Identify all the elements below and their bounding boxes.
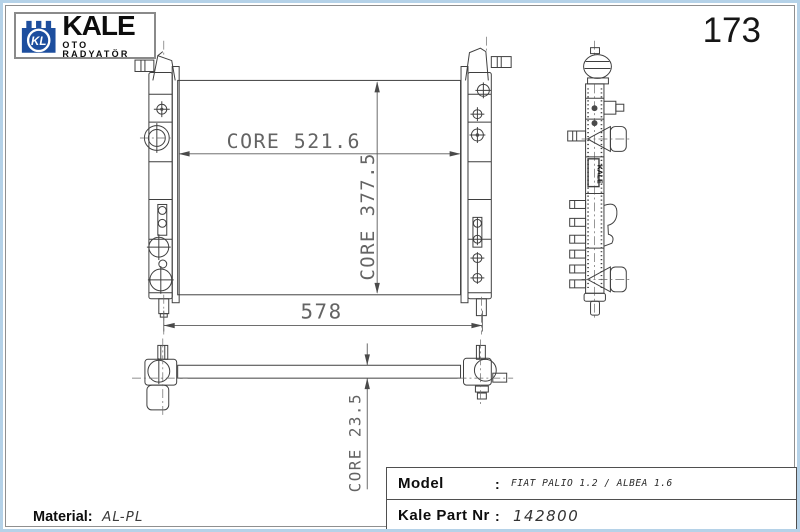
spec-row-part-number: Kale Part Nr : 142800 xyxy=(387,500,796,531)
front-view-left-tank xyxy=(135,41,179,335)
material-value: AL-PL xyxy=(102,509,143,525)
material-note: Material: AL-PL xyxy=(33,508,143,526)
dim-core-depth: CORE 23.5 xyxy=(345,343,370,492)
part-number-value: 142800 xyxy=(513,507,579,525)
spec-row-model: Model : FIAT PALIO 1.2 / ALBEA 1.6 xyxy=(387,468,796,500)
dim-core-height: CORE 377.5 xyxy=(358,81,380,293)
dim-core-width: CORE 521.6 xyxy=(179,130,461,157)
side-view: KALE xyxy=(568,41,631,319)
part-number-colon: : xyxy=(495,508,505,524)
catalog-page: KL KALE OTO RADYATÖR 173 xyxy=(0,0,800,532)
bottom-view-band xyxy=(178,365,461,378)
bottom-left-outlet xyxy=(147,385,169,410)
page-number: 173 xyxy=(703,11,761,51)
kale-logo: KL KALE OTO RADYATÖR xyxy=(14,12,156,59)
logo-brand: KALE xyxy=(62,12,149,40)
spec-table: Model : FIAT PALIO 1.2 / ALBEA 1.6 Kale … xyxy=(386,467,797,532)
radiator-technical-drawing: CORE 521.6 CORE 377.5 578 xyxy=(3,3,797,531)
side-bracket xyxy=(604,204,617,246)
core-width-label: CORE 521.6 xyxy=(227,130,361,153)
overall-width-label: 578 xyxy=(301,300,343,324)
logo-text: KALE OTO RADYATÖR xyxy=(62,12,149,59)
kale-monogram: KL xyxy=(31,36,46,48)
model-label: Model xyxy=(398,475,495,492)
material-label: Material: xyxy=(33,509,93,525)
front-view xyxy=(135,37,511,335)
front-view-right-tank xyxy=(461,37,511,335)
core-height-label: CORE 377.5 xyxy=(358,152,379,280)
dim-overall-width: 578 xyxy=(164,300,483,332)
side-tank-kale-label: KALE xyxy=(595,165,602,184)
kale-castle-icon: KL xyxy=(21,15,56,56)
filler-cap-side xyxy=(584,55,612,79)
bottom-view xyxy=(132,338,513,417)
model-colon: : xyxy=(495,476,505,492)
model-value: FIAT PALIO 1.2 / ALBEA 1.6 xyxy=(511,478,673,489)
side-mount-pegs xyxy=(570,201,586,288)
part-number-label: Kale Part Nr xyxy=(398,507,495,524)
radiator-core xyxy=(178,80,461,294)
core-depth-label: CORE 23.5 xyxy=(345,393,364,492)
logo-subtitle: OTO RADYATÖR xyxy=(62,41,149,59)
right-top-bracket xyxy=(465,48,488,80)
